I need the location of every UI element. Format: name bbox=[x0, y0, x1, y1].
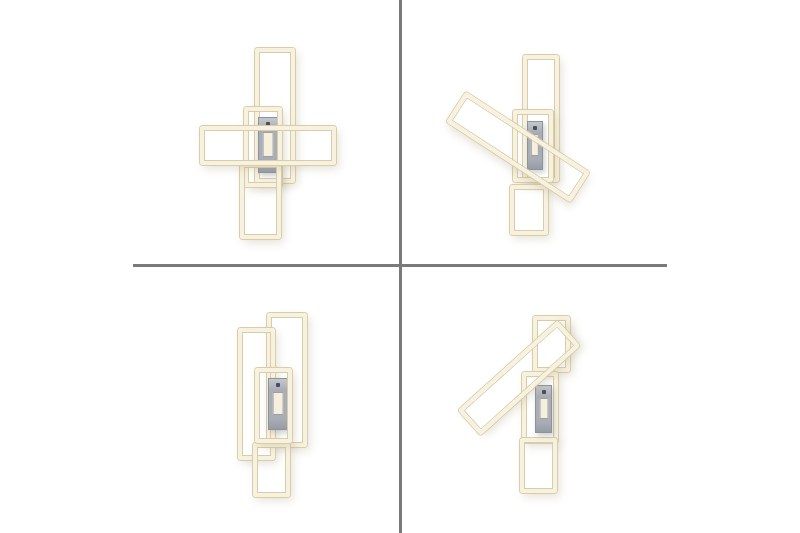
lamp-diagonal-frame bbox=[458, 321, 580, 436]
lamp-canopy bbox=[535, 385, 552, 433]
lamp-sensor-dot-icon bbox=[542, 390, 546, 394]
lamp-canopy-panel bbox=[539, 398, 548, 419]
product-view-bottom-right bbox=[0, 0, 800, 533]
lamp-bottom-frame bbox=[520, 438, 557, 493]
product-grid bbox=[0, 0, 800, 533]
